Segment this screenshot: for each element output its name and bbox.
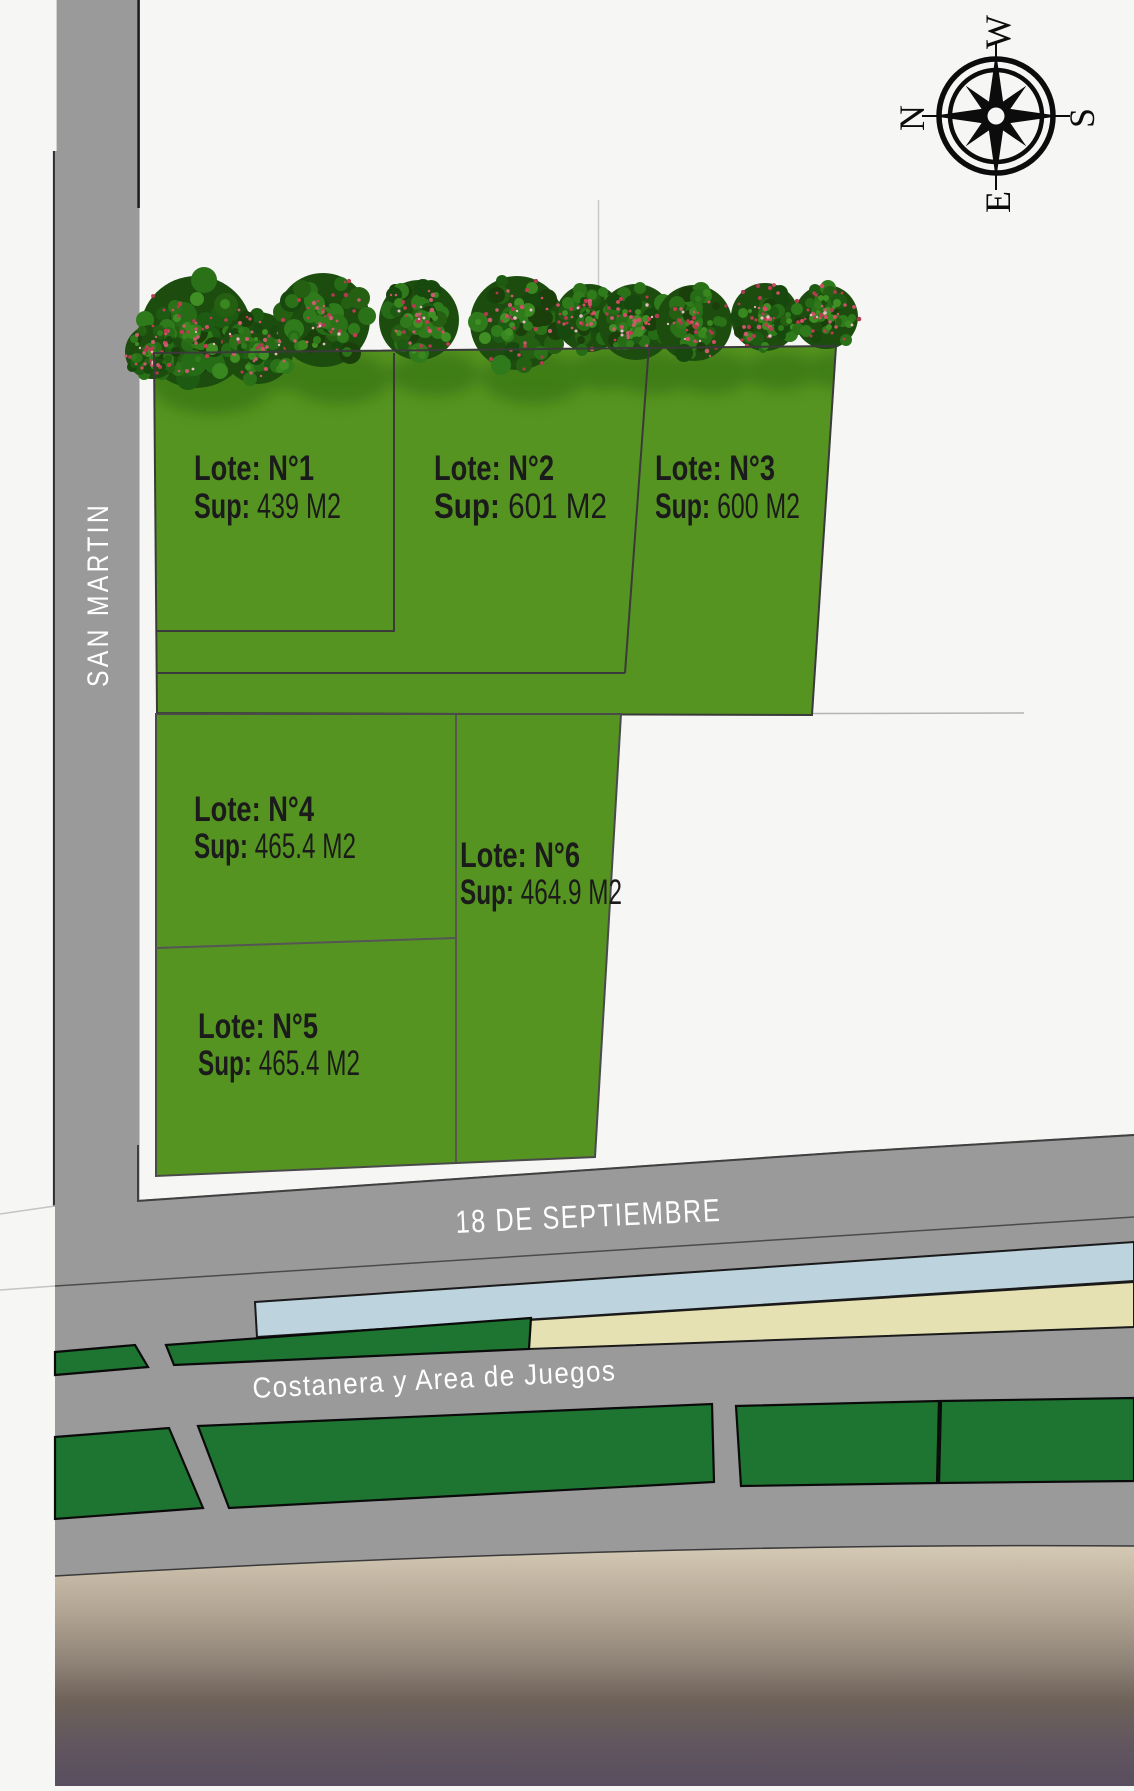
svg-text:S: S <box>1062 108 1102 128</box>
svg-text:Sup: 465.4 M2: Sup: 465.4 M2 <box>198 1044 360 1083</box>
svg-text:Lote: N°1: Lote: N°1 <box>194 449 314 488</box>
svg-text:SAN MARTIN: SAN MARTIN <box>82 502 115 687</box>
svg-text:Sup: 464.9 M2: Sup: 464.9 M2 <box>460 873 622 912</box>
svg-text:Lote: N°5: Lote: N°5 <box>198 1007 318 1046</box>
svg-text:Lote: N°6: Lote: N°6 <box>460 836 580 875</box>
svg-text:Lote: N°2: Lote: N°2 <box>434 449 554 488</box>
svg-text:Sup: 439 M2: Sup: 439 M2 <box>194 487 341 526</box>
svg-text:E: E <box>978 191 1018 213</box>
svg-text:W: W <box>978 15 1018 49</box>
svg-text:Lote: N°4: Lote: N°4 <box>194 790 314 829</box>
svg-text:Sup: 465.4 M2: Sup: 465.4 M2 <box>194 827 356 866</box>
svg-text:N: N <box>892 105 932 131</box>
svg-text:Sup: 601 M2: Sup: 601 M2 <box>434 487 607 526</box>
svg-text:Lote: N°3: Lote: N°3 <box>655 449 775 488</box>
svg-text:Sup: 600 M2: Sup: 600 M2 <box>655 487 800 526</box>
